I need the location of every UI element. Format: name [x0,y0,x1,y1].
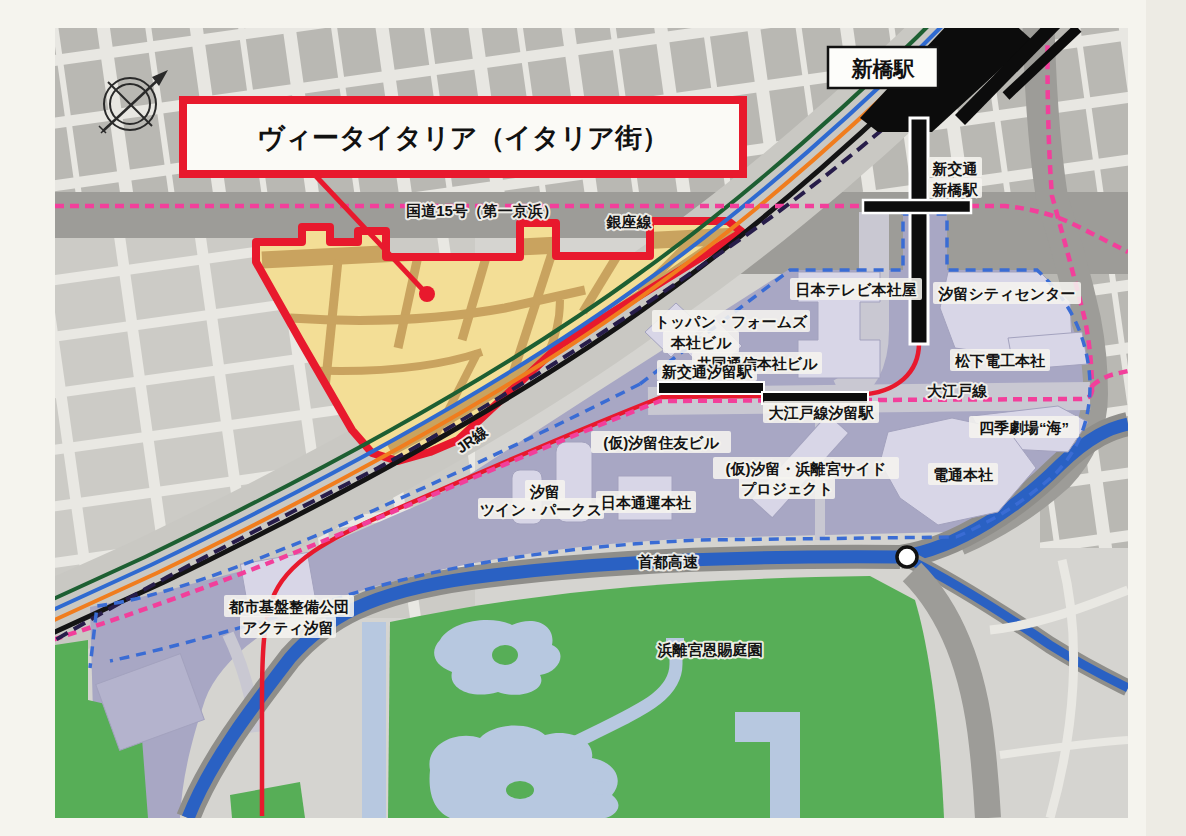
shiki-theatre-label: 四季劇場“海” [979,419,1069,436]
nittsu-label: 日本通運本社 [601,494,692,511]
map-canvas: 国道15号（第一京浜） 銀座線 新交通 新橋駅 日本テレビ本社屋 汐留シティセン… [0,0,1186,836]
shuto-label: 首都高速 [637,553,699,570]
expressway-junction-circle [897,547,917,567]
new-transit-shimbashi-label-2: 新橋駅 [932,181,979,198]
dentsu-label: 電通本社 [933,466,994,483]
twin-parks-label-1: 汐留 [529,483,560,500]
hamarikyu-side-label-2: プロジェクト [741,480,833,497]
acty-label-2: アクティ汐留 [242,619,333,636]
oedo-line-label: 大江戸線 [927,382,988,399]
new-transit-shimbashi-label-1: 新交通 [932,160,979,177]
route15-label: 国道15号（第一京浜） [406,202,558,220]
map-title-label: ヴィータイタリア（イタリア街） [257,123,669,153]
twin-parks-label-2: ツイン・パークス [480,501,602,518]
park-west-moat [362,622,386,818]
sumitomo-label: (仮)汐留住友ビル [603,434,719,451]
leader-dot [419,286,435,302]
toppan-label-1: トッパン・フォームズ [655,313,808,330]
city-center-label: 汐留シティセンター [937,285,1075,302]
oedo-shiodome-label: 大江戸線汐留駅 [769,404,875,421]
new-transit-shiodome-label: 新交通汐留駅 [661,363,753,380]
shimbashi-station-box: 新橋駅 [828,47,938,88]
hamarikyu-side-label-1: (仮)汐留・浜離宮サイド [725,460,886,478]
new-transit-shimbashi-bar [863,200,971,213]
toppan-label-2: 本社ビル [670,334,732,351]
ntv-label: 日本テレビ本社屋 [795,281,916,298]
shimbashi-station-label: 新橋駅 [851,57,916,80]
new-transit-shiodome-bar [658,382,764,394]
scanned-area-map: 国道15号（第一京浜） 銀座線 新交通 新橋駅 日本テレビ本社屋 汐留シティセン… [0,0,1186,836]
hamarikyu-garden-label: 浜離宮恩賜庭園 [657,641,763,659]
new-transit-line-bar [910,118,928,344]
acty-label-1: 都市基盤整備公団 [228,598,349,615]
matsushita-label: 松下電工本社 [954,352,1046,369]
ginza-line-label: 銀座線 [606,213,653,230]
